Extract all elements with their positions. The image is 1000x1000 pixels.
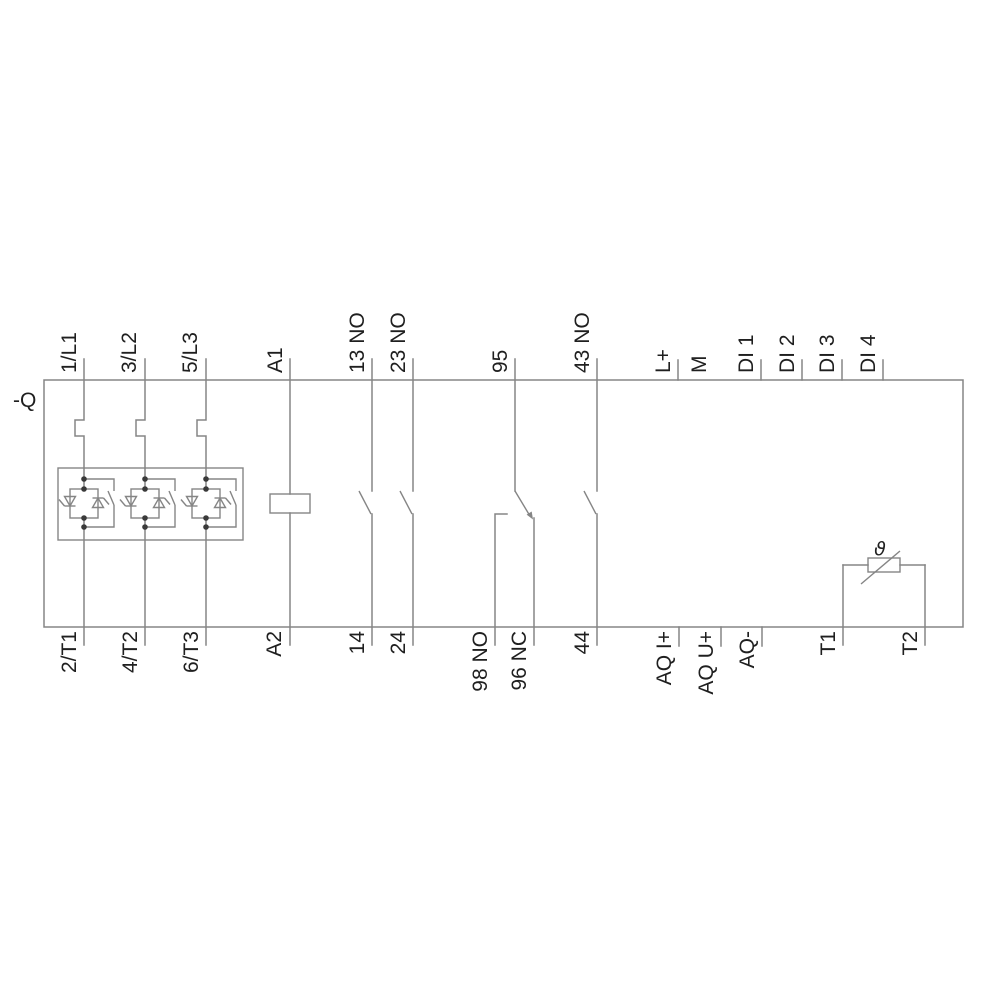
terminal-label-DI2: DI 2 [776,334,799,373]
terminal-label-AQIplus: AQ I+ [653,631,676,685]
phase-line-3L2 [136,359,145,645]
gate-lead [181,500,187,507]
bypass-contact [84,479,114,527]
thyristor-unit-2 [120,476,175,530]
terminal-label-4T2: 4/T2 [119,631,142,673]
terminal-label-43NO: 43 NO [571,312,594,373]
aux-contact-23-24 [400,359,413,645]
theta-symbol: ϑ [874,538,886,560]
contact-blade [584,491,596,514]
terminal-label-96NC: 96 NC [508,631,531,691]
phase-line-1L1 [75,359,84,645]
aux-contact-13-14 [359,359,372,645]
terminal-label-AQUplus: AQ U+ [695,631,718,695]
device-outline [44,380,963,627]
contact-blade [400,491,412,514]
thermistor-circuit: ϑ [843,538,925,645]
soft-starter-wiring-diagram: ϑ -Q 1/L1 3/L2 5/L3 A1 13 NO 23 NO 95 43… [0,0,1000,1000]
terminal-label-AQminus: AQ- [736,631,759,668]
phase-line-5L3 [197,359,206,645]
bypass-contact-blade [230,491,236,505]
terminal-label-5L3: 5/L3 [179,332,202,373]
changeover-contact-95-96-98 [495,359,534,645]
thyristor-unit-3 [181,476,236,530]
terminal-label-A1: A1 [264,347,287,373]
control-coil [270,359,310,645]
coil-symbol [270,494,310,513]
terminal-label-DI3: DI 3 [816,334,839,373]
terminal-label-T1: T1 [817,631,840,656]
terminal-label-M: M [688,356,711,374]
terminal-label-98NO: 98 NO [469,631,492,692]
bypass-contact [145,479,175,527]
terminal-label-24: 24 [387,631,410,655]
terminal-label-T2: T2 [899,631,922,656]
gate-lead [120,500,126,507]
terminal-label-1L1: 1/L1 [58,332,81,373]
bypass-contact-blade [108,491,114,505]
terminal-label-3L2: 3/L2 [118,332,141,373]
gate-lead [226,498,232,505]
phase-lines [75,359,206,645]
device-designation: -Q [13,389,36,412]
terminal-label-DI1: DI 1 [735,334,758,373]
terminal-label-Lplus: L+ [652,349,675,373]
terminal-label-DI4: DI 4 [857,334,880,373]
branch-98 [495,514,507,645]
terminal-label-13NO: 13 NO [346,312,369,373]
thyristor-module [58,468,243,540]
gate-lead [165,498,171,505]
bypass-contact-blade [169,491,175,505]
gate-lead [59,500,65,507]
terminal-label-2T1: 2/T1 [58,631,81,673]
terminal-label-A2: A2 [263,631,286,657]
terminal-label-44: 44 [571,631,594,655]
terminal-labels-bottom: 2/T1 4/T2 6/T3 A2 14 24 98 NO 96 NC 44 A… [58,631,922,695]
contact-blade [515,491,530,516]
terminal-label-95: 95 [489,350,512,373]
terminal-label-14: 14 [346,631,369,655]
terminal-labels-top: 1/L1 3/L2 5/L3 A1 13 NO 23 NO 95 43 NO L… [58,312,880,373]
gate-lead [104,498,110,505]
schematic-svg: ϑ -Q 1/L1 3/L2 5/L3 A1 13 NO 23 NO 95 43… [0,0,1000,1000]
terminal-label-6T3: 6/T3 [180,631,203,673]
bypass-contact [206,479,236,527]
terminal-label-23NO: 23 NO [387,312,410,373]
aux-contact-43-44 [584,359,597,645]
thyristor-unit-1 [59,476,114,530]
contact-blade [359,491,371,514]
